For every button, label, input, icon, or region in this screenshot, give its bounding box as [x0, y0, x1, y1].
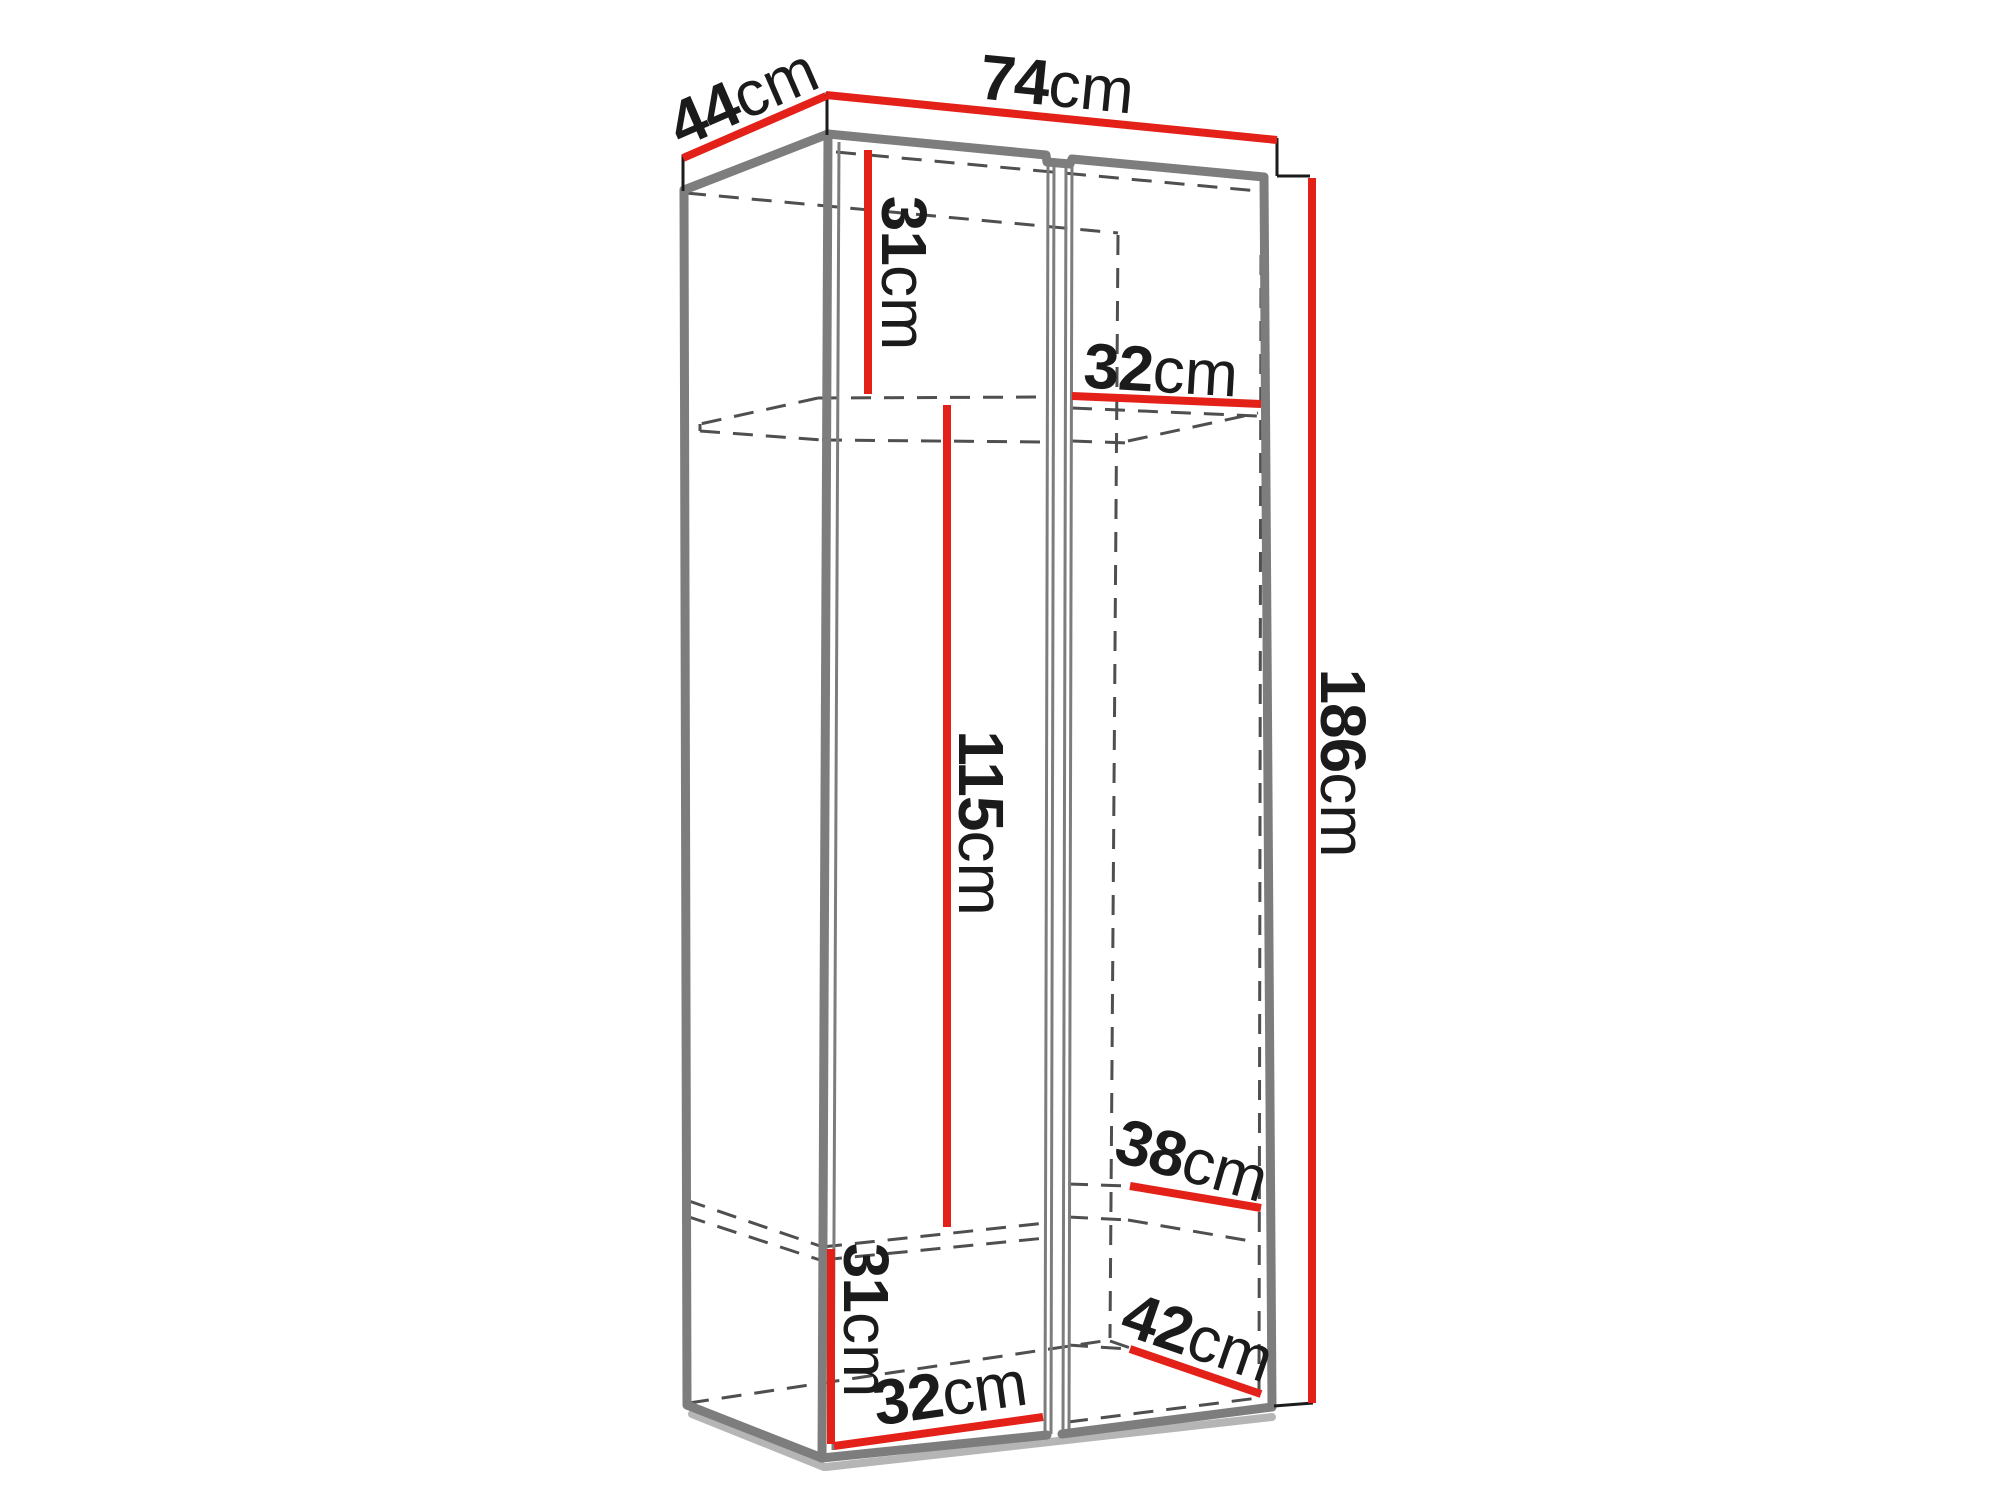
front-right-edge	[1264, 177, 1272, 1407]
hidden-upper-shelf-right-stub	[1072, 441, 1128, 443]
hidden-upper-shelf-side-top	[700, 398, 818, 424]
left-door-right-edge-b	[1051, 159, 1054, 1434]
dim-label-upper-right-inner-width: 32cm	[1082, 329, 1241, 410]
left-door-right-edge-a	[1045, 158, 1048, 1434]
dim-label-top-width: 74cm	[977, 41, 1138, 128]
bottom-left-edge	[687, 1405, 822, 1458]
right-door-left-edge-b	[1069, 160, 1072, 1433]
hidden-lower-shelf-right-stub-bottom	[1068, 1217, 1128, 1220]
hidden-upper-shelf-left-top	[818, 397, 1046, 398]
dim-label-middle-section-height: 115cm	[945, 730, 1017, 916]
hidden-lower-shelf-right-stub-top	[1068, 1184, 1128, 1186]
dim-label-upper-section-height: 31cm	[868, 196, 940, 351]
right-door-left-edge-a	[1063, 160, 1066, 1433]
extension-front-right-bottom	[1274, 1403, 1313, 1406]
wardrobe-dimension-diagram: 44cm 74cm 31cm 32cm 115cm 186cm 38cm 42c…	[0, 0, 2000, 1500]
plinth-shadow-left	[692, 1414, 824, 1467]
dim-label-overall-height: 186cm	[1307, 668, 1379, 857]
hidden-right-inner-edge	[1259, 255, 1261, 1393]
hidden-upper-shelf-right-diagonal	[1128, 413, 1258, 441]
hidden-upper-shelf-left-bottom	[822, 440, 1046, 442]
back-left-edge	[684, 190, 687, 1405]
hidden-lower-shelf-right-diagonal	[1128, 1220, 1256, 1242]
hidden-upper-shelf-side-bottom	[700, 431, 822, 440]
dim-label-bottom-inner-depth: 42cm	[1113, 1278, 1283, 1396]
diagram-canvas: 44cm 74cm 31cm 32cm 115cm 186cm 38cm 42c…	[0, 0, 2000, 1500]
